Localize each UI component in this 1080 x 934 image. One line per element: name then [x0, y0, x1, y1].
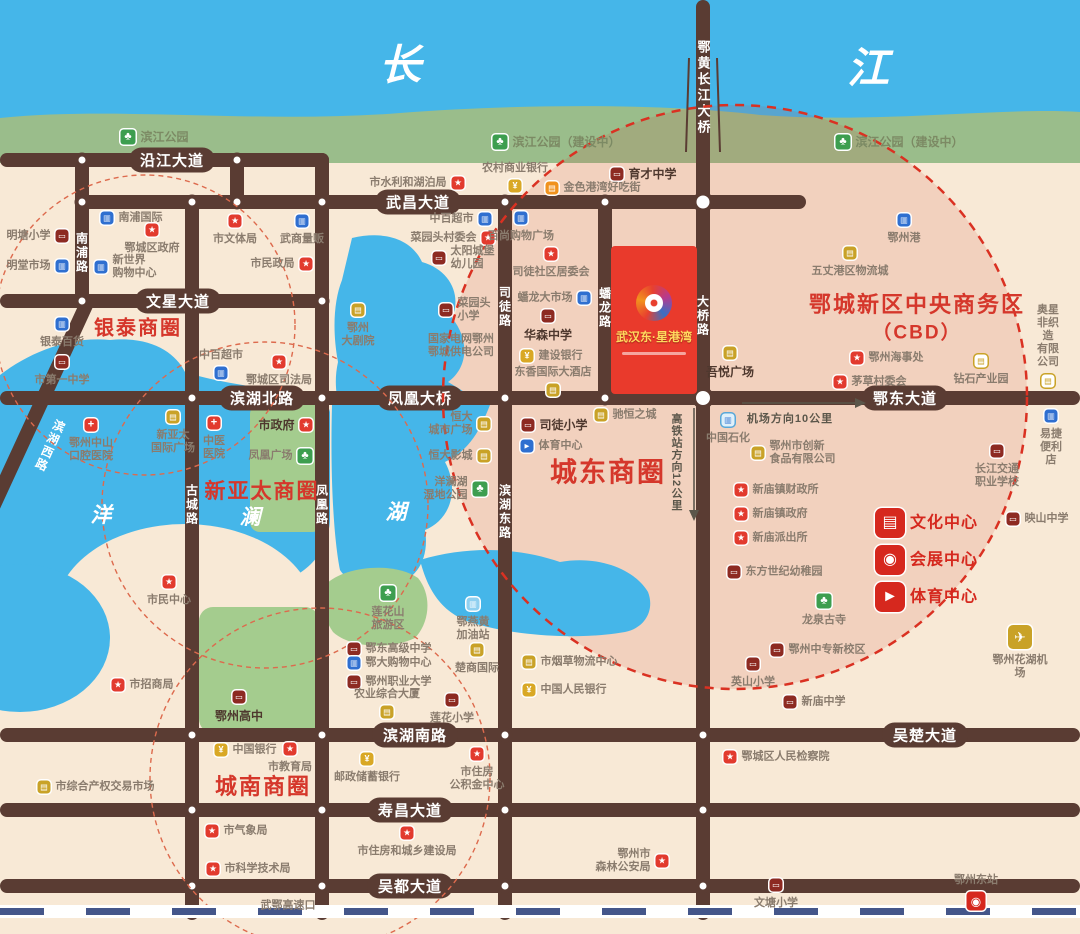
school-icon: ▭ — [56, 356, 69, 369]
gold-icon: ▤ — [471, 644, 484, 657]
poi-label: 司徒小学 — [540, 418, 588, 432]
petro-icon: ▥ — [722, 414, 735, 427]
poi-label: 百尚购物广场 — [488, 230, 554, 243]
poi-label: 市住房和城乡建设局 — [358, 845, 457, 858]
area-label: 湖 — [386, 496, 407, 526]
poi-label: 奥星非织造 有限公司 — [1032, 304, 1064, 370]
station-icon: ◉ — [967, 892, 986, 911]
poi-label: 市水利和湖泊局 — [370, 176, 447, 189]
area-label: 银泰商圈 — [94, 312, 182, 341]
tree-icon: ♣ — [121, 130, 136, 145]
poi-label: 体育中心 — [910, 587, 978, 606]
area-label: 澜 — [240, 501, 261, 531]
poi-label: 中国人民银行 — [541, 683, 607, 696]
poi-label: 映山中学 — [1025, 512, 1069, 525]
tree-icon: ♣ — [817, 594, 832, 609]
school-icon: ▭ — [56, 230, 69, 243]
school-icon: ▭ — [728, 566, 741, 579]
area-label: （CBD） — [872, 318, 961, 345]
poi-label: 鄂州花湖机场 — [990, 654, 1050, 680]
poi-label: 武商量贩 — [280, 233, 324, 246]
gov-icon: ★ — [284, 743, 297, 756]
gold-icon: ▤ — [38, 781, 51, 794]
poi-label: 鄂州中山 口腔医院 — [69, 437, 113, 463]
poi-label: 太阳城堡 幼儿园 — [451, 245, 495, 271]
gold-o-icon: ▤ — [1042, 375, 1055, 388]
bank-icon: ¥ — [521, 350, 534, 363]
blue-icon: ▥ — [578, 292, 591, 305]
gov-icon: ★ — [146, 224, 159, 237]
poi-label: 蟠龙大市场 — [518, 291, 573, 304]
poi-label: 洋澜湖 湿地公园 — [424, 476, 468, 502]
gov-icon: ★ — [112, 679, 125, 692]
poi-label: 新庙镇财政所 — [753, 483, 819, 496]
poi-label: 鄂州中专新校区 — [789, 643, 866, 656]
gold-icon: ▤ — [478, 450, 491, 463]
poi-label: 滨江公园 — [141, 130, 189, 144]
poi-label: 凤凰广场 — [249, 449, 293, 462]
gov-icon: ★ — [834, 376, 847, 389]
poi-label: 司徒社区居委会 — [513, 266, 590, 279]
school-icon: ▭ — [440, 304, 453, 317]
gov-icon: ★ — [300, 258, 313, 271]
area-label: 鄂城新区中央商务区 — [809, 287, 1025, 319]
poi-label: 鄂州 大剧院 — [342, 322, 375, 348]
poi-label: 恒大 城市广场 — [429, 411, 473, 437]
poi-label: 鄂城区人民检察院 — [742, 750, 830, 763]
poi-label: 市住房 公积金中心 — [450, 766, 505, 792]
poi-label: 中百超市 — [430, 212, 474, 225]
bank-icon: ¥ — [215, 744, 228, 757]
poi-label: 银泰百货 — [40, 336, 84, 349]
area-label: 城东商圈 — [550, 451, 666, 490]
area-label: 新亚太商圈 — [205, 475, 320, 505]
gold-icon: ▤ — [352, 304, 365, 317]
gov-icon: ★ — [735, 508, 748, 521]
blue-icon: ▥ — [101, 212, 114, 225]
hosp-icon: + — [208, 417, 221, 430]
gov-icon: ★ — [273, 356, 286, 369]
poi-label: 鄂州港 — [888, 232, 921, 245]
city-map: 沿江大道武昌大道文星大道滨湖北路凤凰大桥鄂东大道滨湖南路吴楚大道寿昌大道吴都大道… — [0, 0, 1080, 934]
poi-label: 会展中心 — [910, 550, 978, 569]
expo-icon: ◉ — [875, 545, 905, 575]
poi-label: 文塘小学 — [754, 897, 798, 910]
gas-icon: ▥ — [467, 598, 480, 611]
poi-label: 鄂州东站 — [954, 873, 998, 886]
gov-icon: ★ — [724, 751, 737, 764]
poi-label: 楚商国际 — [455, 662, 499, 675]
poi-label: 南浦国际 — [119, 211, 163, 224]
poi-label: 鄂城区司法局 — [246, 374, 312, 387]
poi-label: 市文体局 — [213, 233, 257, 246]
poi-label: 莲花山 旅游区 — [372, 606, 405, 632]
school-icon: ▭ — [433, 252, 446, 265]
poi-label: 英山小学 — [731, 676, 775, 689]
poi-label: 鄂州市创新 食品有限公司 — [770, 440, 836, 466]
poi-label: 长江交通 职业学校 — [975, 463, 1019, 489]
gold-icon: ▤ — [547, 384, 560, 397]
gov-icon: ★ — [206, 825, 219, 838]
poi-label: 易捷便利店 — [1037, 428, 1066, 468]
school-icon: ▭ — [522, 419, 535, 432]
poi-label: 市招商局 — [130, 678, 174, 691]
poi-label: 明堂市场 — [7, 259, 51, 272]
gold-icon: ▤ — [844, 247, 857, 260]
blue-icon: ▥ — [898, 214, 911, 227]
poi-label: 鄂东高级中学 — [366, 642, 432, 655]
poi-label: 新亚太 国际广场 — [151, 429, 195, 455]
poi-label: 鄂大购物中心 — [366, 656, 432, 669]
gold-icon: ▤ — [381, 706, 394, 719]
gov-icon: ★ — [851, 352, 864, 365]
poi-label: 中国石化 — [706, 432, 750, 445]
poi-label: 体育中心 — [539, 439, 583, 452]
tree-icon: ♣ — [493, 135, 508, 150]
poi-label: 市民中心 — [147, 594, 191, 607]
gov-icon: ★ — [735, 484, 748, 497]
bank-icon: ¥ — [361, 753, 374, 766]
gov-icon: ★ — [452, 177, 465, 190]
area-label: 江 — [847, 35, 889, 96]
tree-icon: ♣ — [298, 449, 313, 464]
tree-icon: ♣ — [473, 482, 488, 497]
poi-label: 东方世纪幼稚园 — [746, 565, 823, 578]
poi-label: 建设银行 — [539, 349, 583, 362]
gov-icon: ★ — [163, 576, 176, 589]
blue-icon: ▥ — [479, 213, 492, 226]
plane-icon: ✈ — [1008, 625, 1032, 649]
culture-icon: ▤ — [875, 508, 905, 538]
gold-icon: ▤ — [523, 656, 536, 669]
poi-label: 莲花小学 — [430, 712, 474, 725]
school-icon: ▭ — [771, 644, 784, 657]
poi-label: 茅草村委会 — [852, 375, 907, 388]
direction-hint: 高铁站方向12公里 — [668, 413, 684, 511]
poi-label: 滨江公园（建设中） — [513, 135, 621, 149]
school-icon: ▭ — [747, 658, 760, 671]
poi-label: 市综合产权交易市场 — [56, 780, 155, 793]
poi-label: 鄂州海事处 — [869, 351, 924, 364]
school-icon: ▭ — [348, 643, 361, 656]
bank-icon: ¥ — [509, 180, 522, 193]
school-icon: ▭ — [611, 168, 624, 181]
area-label: 洋 — [91, 499, 112, 529]
area-label: 长 — [379, 32, 421, 93]
gold-icon: ▤ — [752, 447, 765, 460]
gold-icon: ▤ — [595, 409, 608, 422]
poi-label: 市民政局 — [251, 257, 295, 270]
gov-icon: ★ — [471, 748, 484, 761]
poi-label: 新庙派出所 — [753, 531, 808, 544]
poi-label: 育才中学 — [629, 167, 677, 181]
sportb-icon: ► — [521, 440, 534, 453]
poi-label: 农村商业银行 — [482, 161, 548, 174]
poi-label: 鄂州市 森林公安局 — [596, 848, 651, 874]
school-icon: ▭ — [784, 696, 797, 709]
poi-label: 新世界 购物中心 — [113, 254, 157, 280]
gov-icon: ★ — [656, 855, 669, 868]
blue-icon: ▥ — [95, 261, 108, 274]
poi-label: 市气象局 — [224, 824, 268, 837]
poi-label: 市科学技术局 — [225, 862, 291, 875]
poi-label: 滨江公园（建设中） — [856, 135, 964, 149]
poi-label: 新庙中学 — [802, 695, 846, 708]
poi-label: 龙泉古寺 — [802, 614, 846, 627]
school-icon: ▭ — [233, 691, 246, 704]
poi-label: 钻石产业园 — [954, 373, 1009, 386]
poi-label: 邮政储蓄银行 — [334, 771, 400, 784]
direction-hint: 机场方向10公里 — [747, 410, 833, 426]
blue-icon: ▥ — [56, 318, 69, 331]
poi-label: 武鄂高速口 — [261, 899, 316, 912]
map-labels: 长江洋澜湖银泰商圈新亚太商圈城南商圈城东商圈鄂城新区中央商务区（CBD）高铁站方… — [0, 0, 1080, 934]
poi-label: 中医 医院 — [203, 435, 225, 461]
gov-icon: ★ — [207, 863, 220, 876]
sportr-icon: ► — [875, 582, 905, 612]
poi-label: 鄂燕黄 加油站 — [457, 616, 490, 642]
poi-label: 五丈港区物流城 — [812, 265, 889, 278]
poi-label: 菜园头村委会 — [411, 231, 477, 244]
hosp-icon: + — [85, 419, 98, 432]
area-label: 城南商圈 — [215, 769, 311, 801]
poi-label: 农业综合大厦 — [354, 687, 420, 700]
poi-label: 吾悦广场 — [706, 365, 754, 379]
school-icon: ▭ — [1007, 513, 1020, 526]
blue-icon: ▥ — [1045, 410, 1058, 423]
poi-label: 恒大影城 — [429, 449, 473, 462]
gov-icon: ★ — [735, 532, 748, 545]
poi-label: 中百超市 — [199, 348, 243, 361]
gold-icon: ▤ — [478, 418, 491, 431]
gold-o-icon: ▤ — [975, 355, 988, 368]
tree-icon: ♣ — [836, 135, 851, 150]
blue-icon: ▥ — [56, 260, 69, 273]
poi-label: 明塘小学 — [7, 229, 51, 242]
gov-icon: ★ — [545, 248, 558, 261]
tree-icon: ♣ — [381, 586, 396, 601]
poi-label: 市教育局 — [268, 761, 312, 774]
blue-icon: ▥ — [515, 212, 528, 225]
poi-label: 华森中学 — [524, 328, 572, 342]
gov-icon: ★ — [229, 215, 242, 228]
blue-icon: ▥ — [296, 215, 309, 228]
poi-label: 国家电网鄂州 鄂城供电公司 — [428, 333, 494, 359]
gold-icon: ▤ — [724, 347, 737, 360]
school-icon: ▭ — [446, 694, 459, 707]
school-icon: ▭ — [991, 445, 1004, 458]
poi-label: 市第一中学 — [35, 374, 90, 387]
gov-icon: ★ — [300, 419, 313, 432]
gov-icon: ★ — [401, 827, 414, 840]
poi-label: 鄂州高中 — [215, 709, 263, 723]
poi-label: 市政府 — [258, 418, 294, 432]
school-icon: ▭ — [770, 879, 783, 892]
blue-icon: ▥ — [348, 657, 361, 670]
gold-icon: ▤ — [167, 411, 180, 424]
poi-label: 市烟草物流中心 — [541, 655, 618, 668]
poi-label: 中国银行 — [233, 743, 277, 756]
poi-label: 金色港湾好吃街 — [564, 181, 641, 194]
school-icon: ▭ — [542, 310, 555, 323]
orange-icon: ▤ — [546, 182, 559, 195]
poi-label: 鄂城区政府 — [125, 242, 180, 255]
poi-label: 驰恒之城 — [613, 408, 657, 421]
blue-icon: ▥ — [215, 367, 228, 380]
poi-label: 新庙镇政府 — [753, 507, 808, 520]
bank-icon: ¥ — [523, 684, 536, 697]
poi-label: 菜园头 小学 — [458, 297, 491, 323]
poi-label: 东香国际大酒店 — [515, 365, 592, 378]
poi-label: 文化中心 — [910, 513, 978, 532]
